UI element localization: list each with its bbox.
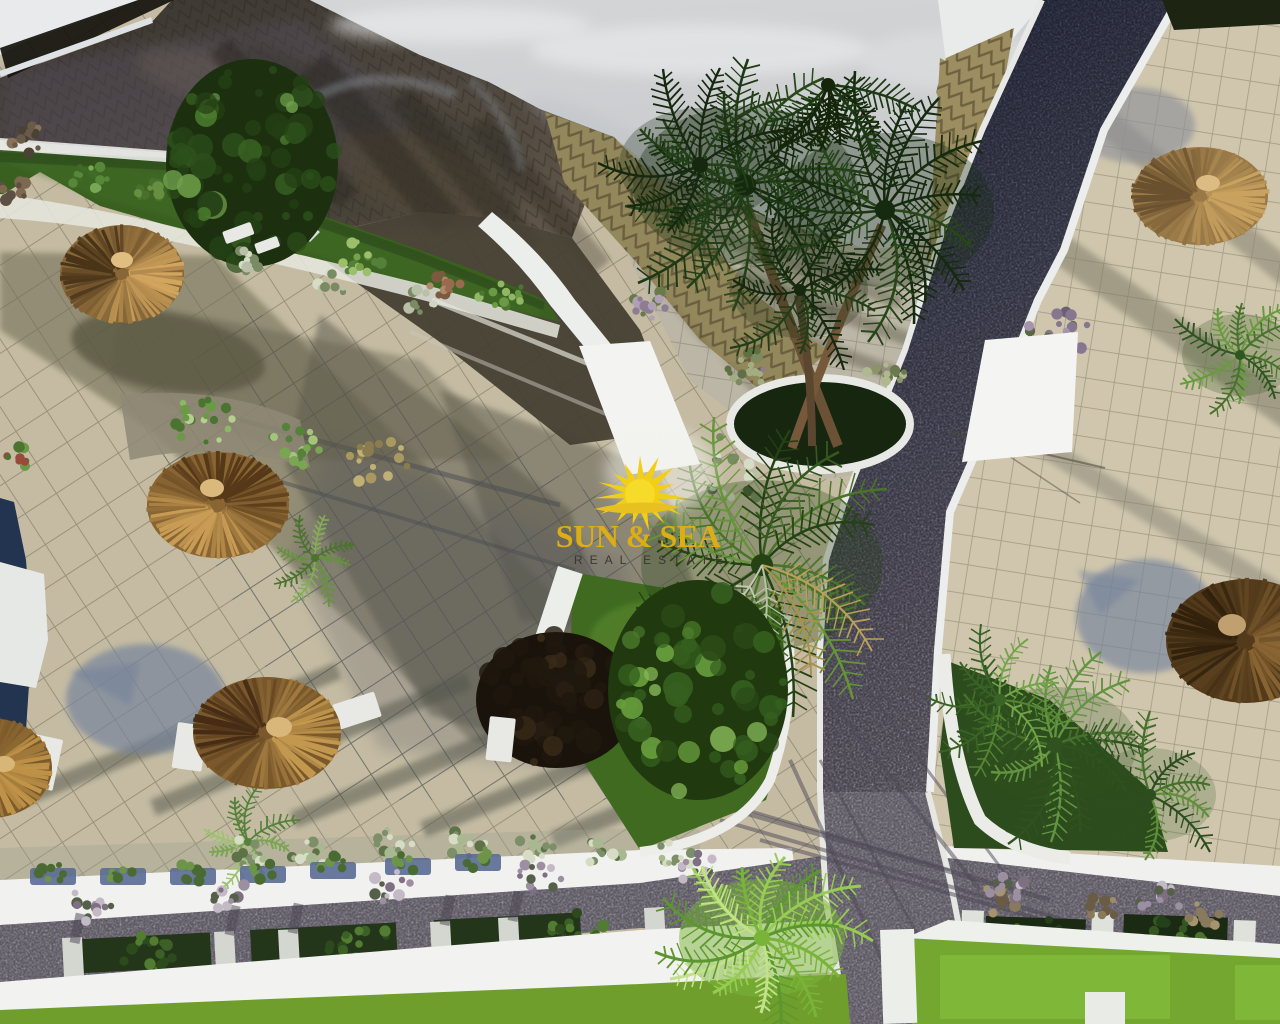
svg-text:SUN & SEA: SUN & SEA: [556, 518, 721, 554]
svg-text:REAL ESTATE: REAL ESTATE: [574, 553, 730, 567]
